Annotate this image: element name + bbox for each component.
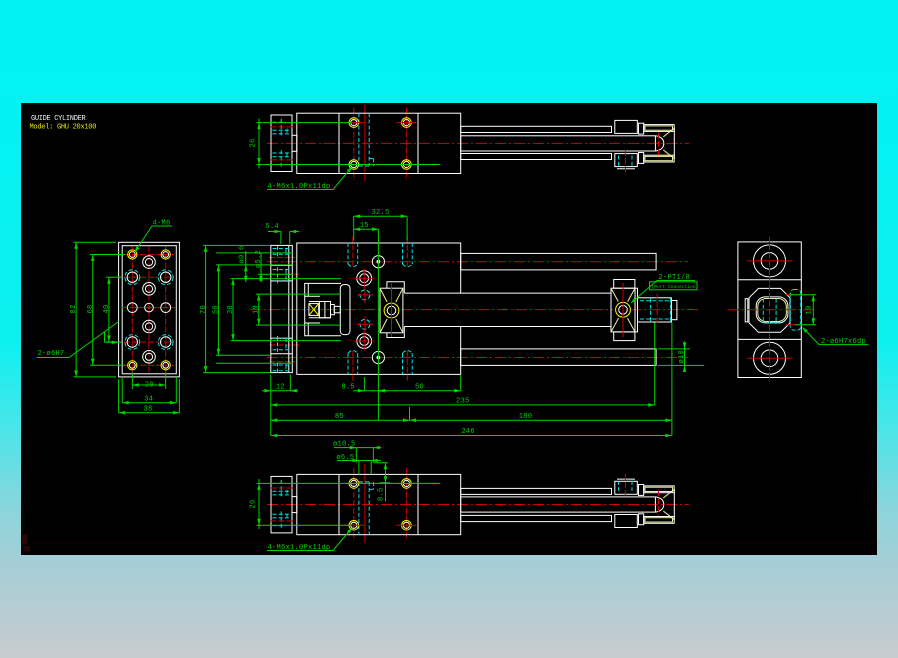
svg-text:246: 246 (461, 428, 475, 436)
svg-text:ø9.6: ø9.6 (238, 245, 246, 263)
svg-text:ø10.5: ø10.5 (333, 440, 356, 448)
svg-text:26: 26 (250, 499, 258, 508)
svg-text:ø5.2: ø5.2 (255, 250, 263, 268)
svg-text:8.5: 8.5 (377, 487, 385, 501)
svg-text:15: 15 (360, 222, 369, 230)
svg-text:40: 40 (103, 304, 111, 313)
svg-text:GUIDE CYLINDER: GUIDE CYLINDER (31, 115, 86, 123)
svg-text:(Port Connection): (Port Connection) (652, 284, 699, 290)
svg-text:38: 38 (144, 406, 153, 414)
svg-text:34: 34 (144, 395, 153, 403)
svg-text:32.5: 32.5 (372, 209, 390, 217)
svg-text:20: 20 (145, 381, 154, 389)
svg-text:58: 58 (212, 305, 220, 314)
svg-text:26: 26 (250, 138, 258, 147)
svg-text:19: 19 (253, 305, 261, 314)
svg-text:19: 19 (806, 305, 814, 314)
svg-text:Model: GHU 20x100: Model: GHU 20x100 (30, 124, 97, 132)
svg-text:38: 38 (227, 305, 235, 314)
svg-text:ø6.5: ø6.5 (336, 454, 354, 462)
svg-text:82: 82 (70, 304, 78, 313)
svg-text:2-ø6H7: 2-ø6H7 (38, 350, 65, 358)
svg-text:235: 235 (456, 398, 470, 406)
svg-text:5.4: 5.4 (266, 223, 280, 231)
svg-text:180: 180 (519, 413, 533, 421)
svg-text:68: 68 (87, 304, 95, 313)
svg-text:50: 50 (415, 383, 424, 391)
svg-text:ø10: ø10 (678, 350, 686, 364)
svg-text:85: 85 (335, 413, 344, 421)
svg-text:78: 78 (200, 305, 208, 314)
svg-text:12: 12 (276, 383, 285, 391)
svg-text:8.5: 8.5 (341, 383, 355, 391)
